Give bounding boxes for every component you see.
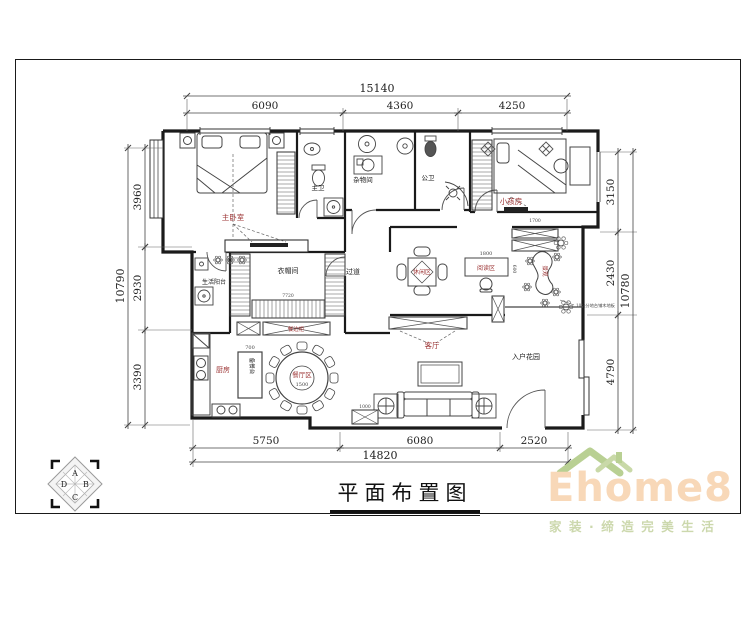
marker-letter-right: B	[83, 480, 89, 489]
floor-plan-canvas: 主卧室 主卫 杂物间 公卫 小孩房 衣帽间 过道 生活阳台 厨房 餐厅区 客厅 …	[0, 0, 756, 630]
master-bed	[180, 133, 284, 193]
dim-bottom-seg3: 2520	[521, 435, 548, 447]
label-kids-room: 小孩房	[500, 196, 523, 206]
label-kitchen: 厨房	[216, 365, 230, 374]
dim-bottom-overall: 14820	[363, 449, 398, 462]
dim-bottom-seg1: 5750	[253, 435, 280, 447]
logo-tagline: 家装·缔造完美生活	[549, 516, 721, 535]
cloak-right	[325, 254, 345, 316]
platform-note: 10公分地台铺木地板	[576, 302, 616, 309]
dim-right-seg1: 3150	[605, 179, 617, 206]
dim-desk-width: 1800	[480, 251, 493, 257]
dim-top-overall: 15140	[360, 82, 395, 95]
label-landscape: 景观	[541, 265, 548, 277]
cloak-bottom	[252, 300, 325, 318]
side-stools	[374, 394, 496, 418]
master-wardrobe	[277, 152, 295, 214]
reading-desk	[465, 258, 508, 292]
label-prep-counter: 备餐台	[248, 358, 256, 375]
marker-letter-top: A	[71, 469, 78, 478]
label-sideboard: 餐边柜	[288, 325, 305, 333]
master-bath-fixtures	[304, 143, 343, 216]
dim-left-seg2: 2930	[132, 275, 144, 302]
label-leisure-zone: 休闲区	[413, 268, 431, 276]
marker-letter-left: D	[61, 480, 67, 489]
living-side-cabinet	[352, 410, 378, 424]
title-underline-thick	[330, 510, 480, 513]
tv-cabinet	[389, 317, 467, 329]
dim-left-seg1: 3960	[132, 184, 144, 211]
page-title: 平面布置图	[330, 477, 480, 507]
cloak-left	[230, 254, 250, 316]
label-reading-zone: 阅读区	[477, 264, 495, 272]
dim-island: 700	[245, 345, 255, 351]
dim-bottom-seg2: 6080	[407, 435, 434, 447]
label-living-balcony: 生活阳台	[202, 278, 226, 286]
dim-cloak-width: 7720	[282, 293, 294, 299]
label-public-bath: 公卫	[422, 174, 436, 182]
label-master-bath: 主卫	[312, 183, 326, 192]
dim-side-cabinet: 1000	[359, 404, 371, 410]
dim-left-seg3: 3390	[132, 364, 144, 391]
label-dining-zone: 餐厅区	[292, 370, 312, 379]
drawing-title-block: 平面布置图	[330, 477, 480, 516]
kids-bed	[494, 139, 590, 193]
dim-left-overall: 10790	[114, 269, 127, 304]
sofa	[397, 392, 479, 418]
study-cabinet-2	[512, 240, 558, 251]
dim-top-seg3: 4250	[499, 100, 526, 112]
title-underline-thin	[330, 515, 480, 516]
dim-right-overall: 10780	[619, 274, 632, 309]
dim-right-seg3: 4790	[605, 359, 617, 386]
dim-top-cabinet: 1700	[529, 218, 541, 224]
marker-letter-bottom: C	[72, 493, 78, 502]
elevation-marker: A B C D	[44, 453, 106, 515]
label-hallway: 过道	[346, 267, 360, 276]
dim-dining-table: 1500	[296, 382, 309, 388]
dim-top-seg2: 4360	[387, 100, 414, 112]
label-master-bedroom: 主卧室	[222, 212, 245, 222]
platform-cabinet	[492, 296, 504, 322]
label-living-room: 客厅	[425, 340, 440, 350]
label-entry-garden: 入户花园	[512, 352, 540, 361]
dim-right-seg2: 2430	[605, 260, 617, 287]
public-bath-fixtures	[397, 136, 468, 206]
logo-brand-text: Ehome8	[547, 468, 733, 508]
storage-fixtures	[354, 136, 382, 175]
dim-top-seg1: 6090	[252, 100, 279, 112]
sideboard-small	[237, 322, 260, 335]
dim-desk-depth: 600	[511, 265, 517, 274]
label-cloakroom: 衣帽间	[278, 266, 299, 275]
label-storage: 杂物间	[353, 175, 373, 184]
study-cabinet-1	[512, 229, 558, 238]
coffee-table	[418, 362, 462, 386]
